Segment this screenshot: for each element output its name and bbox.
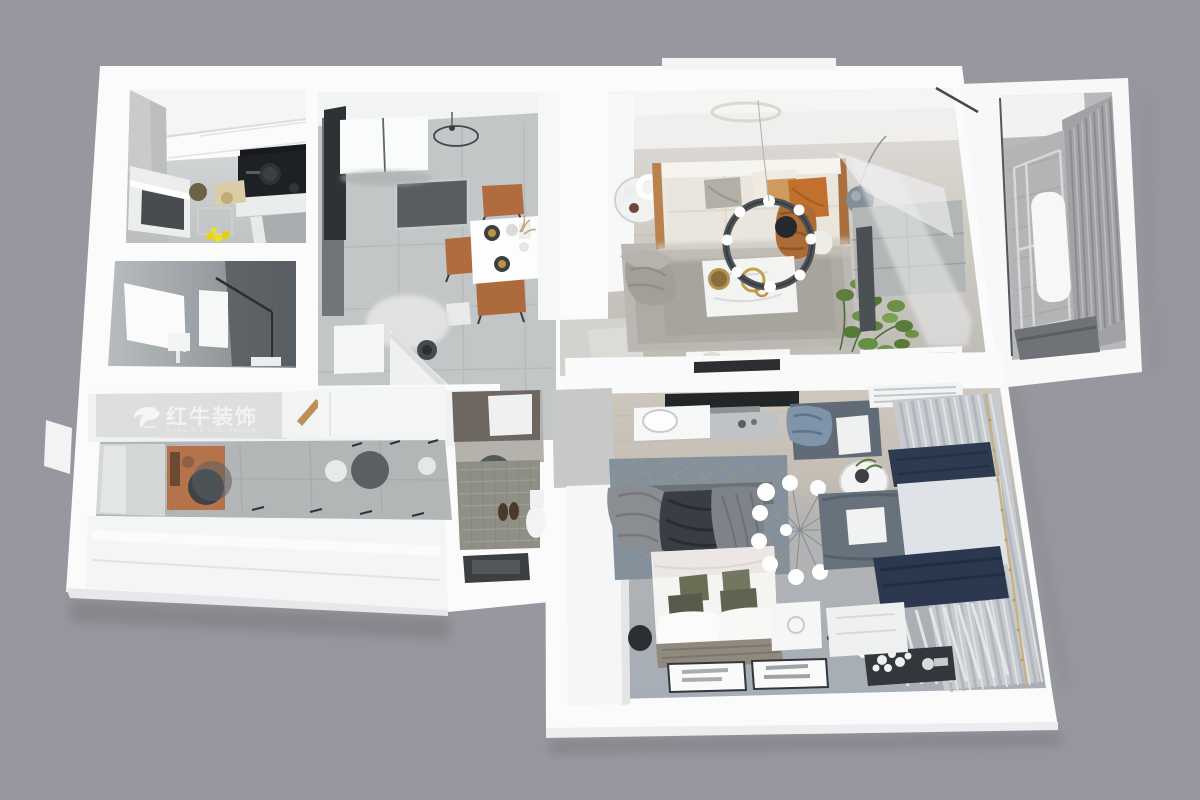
svg-text:HONG NIU DECORATION: HONG NIU DECORATION: [167, 428, 257, 434]
svg-text:红牛装饰: 红牛装饰: [166, 405, 258, 429]
